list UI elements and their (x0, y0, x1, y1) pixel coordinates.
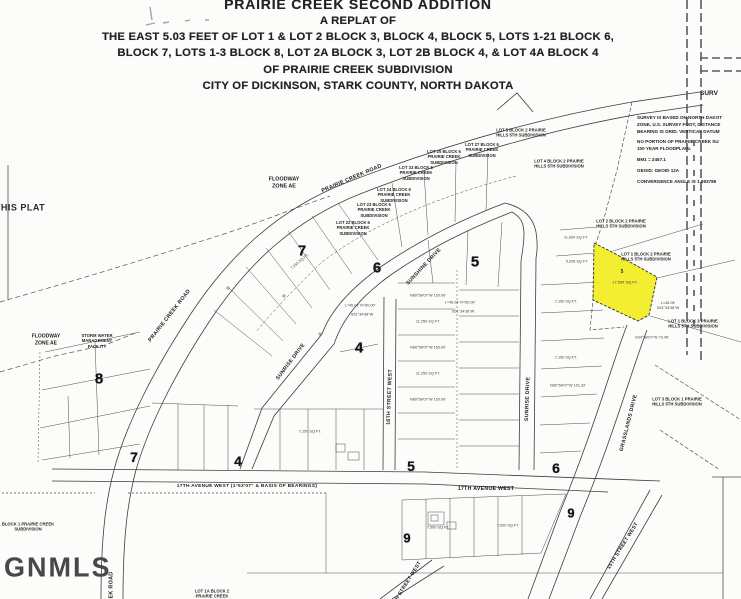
street-grasslands-drive: GRASSLANDS DRIVE (619, 394, 639, 452)
area-label: 7,150 SQ.FT. (555, 355, 577, 360)
area-label: 11,250 SQ.FT. (416, 371, 440, 376)
block-number: 6 (552, 461, 560, 475)
area-label: 11,250 SQ.FT. (416, 319, 440, 324)
curve-label: S51°34'38"W (452, 309, 474, 314)
plat-map-document: PRAIRIE CREEK SECOND ADDITION A REPLAT O… (0, 0, 741, 599)
adjacent-lot-label: LOT 27 BLOCK 6 PRAIRIE CREEK SUBDIVISION (465, 142, 499, 158)
adjacent-lot-label: LOT 3 BLOCK 1 PRAIRIE HILLS 5TH SUBDIVIS… (652, 397, 702, 408)
adjacent-lot-label: LOT 33 BLOCK 6 PRAIRIE CREEK SUBDIVISION (399, 165, 433, 181)
block1-subdivision-label: BLOCK 1 PRAIRIE CREEK SUBDIVISION (2, 522, 54, 533)
adjacent-lot-label: LOT 1 BLOCK 2 PRAIRIE HILLS 5TH SUBDIVIS… (621, 252, 671, 263)
street-15th-street-west: 15TH STREET WEST (606, 521, 640, 570)
area-label: 7,150 SQ.FT. (555, 299, 577, 304)
area-label: 11,004 SQ.FT. (564, 235, 588, 240)
curve-label: L=45.04' R=50.00' (345, 303, 376, 308)
highlighted-lot-area: 17,554 SQ.FT. (612, 279, 638, 284)
block-number: 8 (95, 372, 103, 387)
adjacent-lot-label: LOT 23 BLOCK 6 PRAIRIE CREEK SUBDIVISION (357, 202, 391, 218)
street-sunrise-drive: SUNRISE DRIVE (524, 377, 532, 421)
adjacent-lot-label: LOT 5 BLOCK 2 PRAIRIE HILLS 5TH SUBDIVIS… (496, 128, 546, 139)
block-number: 5 (407, 459, 415, 473)
adjacent-lot-label: LOT 25 BLOCK 6 PRAIRIE CREEK SUBDIVISION (427, 149, 461, 165)
storm-water-facility-label: STORM WATER MANAGEMENT FACILITY (81, 333, 112, 349)
area-label: 7,500 SQ.FT. (497, 523, 519, 528)
area-label: 5,208 SQ.FT. (566, 259, 588, 264)
bearing-label: N89°58'07"W 150.00' (410, 293, 446, 298)
lot1a-label: LOT 1A BLOCK 2 PRAIRIE CREEK (195, 589, 229, 599)
street-prairie-creek-road: PRAIRIE CREEK ROAD (321, 163, 383, 195)
street-sunrise-drive: SUNRISE DRIVE (275, 342, 307, 381)
floodway-zone-label: FLOODWAY ZONE AE (32, 333, 60, 347)
block-number: 9 (403, 532, 410, 545)
bearing-label: N89°58'07"W 150.00' (410, 397, 446, 402)
street-17th-avenue-west: 17TH AVENUE WEST (1°53'07" & BASIS OF BE… (177, 484, 317, 490)
adjacent-lot-label: LOT 2 BLOCK 2 PRAIRIE HILLS 5TH SUBDIVIS… (596, 219, 646, 230)
bearing-label: N89°58'07"W 101.32' (550, 383, 586, 388)
street-17th-avenue-west: 17TH AVENUE WEST (458, 486, 514, 493)
street-15th-street-west: 15TH STREET WEST (389, 560, 423, 599)
this-plat-label: THIS PLAT (0, 202, 45, 213)
block-number: 5 (471, 255, 479, 270)
bearing-label: N89°58'07"W 150.00' (410, 345, 446, 350)
adjacent-lot-label: LOT 1 BLOCK 3 PRAIRIE HILLS 5TH SUBDIVIS… (668, 319, 718, 330)
adjacent-lot-label: LOT 4 BLOCK 2 PRAIRIE HILLS 5TH SUBDIVIS… (534, 159, 584, 170)
area-label: 7,150 SQ.FT. (299, 429, 321, 434)
highlighted-lot-number: 5 (621, 269, 624, 275)
adjacent-lot-label: LOT 22 BLOCK 6 PRAIRIE CREEK SUBDIVISION (336, 220, 370, 236)
street-sunshine-drive: SUNSHINE DRIVE (405, 247, 443, 287)
curve-label: L=45.04' R=50.00' (445, 300, 476, 305)
adjacent-lot-label: LOT 24 BLOCK 6 PRAIRIE CREEK SUBDIVISION (377, 187, 411, 203)
map-label-layer: PRAIRIE CREEK ROADPRAIRIE CREEK ROADPRAI… (0, 0, 741, 599)
block-number: 4 (355, 341, 363, 356)
street-prairie-creek-road: PRAIRIE CREEK ROAD (147, 288, 192, 343)
block-number: 6 (373, 261, 381, 276)
block-number: 9 (567, 507, 574, 520)
street-16th-street-west: 16TH STREET WEST (386, 369, 394, 425)
block-number: 4 (234, 454, 242, 468)
bearing-label: S04°58'07"W 73.45' (635, 335, 669, 340)
curve-label: L=45.04' S51°34'38"W (657, 301, 679, 311)
floodway-zone-label: FLOODWAY ZONE AE (269, 177, 300, 192)
gnmls-watermark: GNMLS (4, 551, 112, 583)
area-label: 7,500 SQ.FT. (427, 525, 449, 530)
curve-label: S51°34'38"W (351, 312, 373, 317)
block-number: 7 (130, 450, 138, 464)
